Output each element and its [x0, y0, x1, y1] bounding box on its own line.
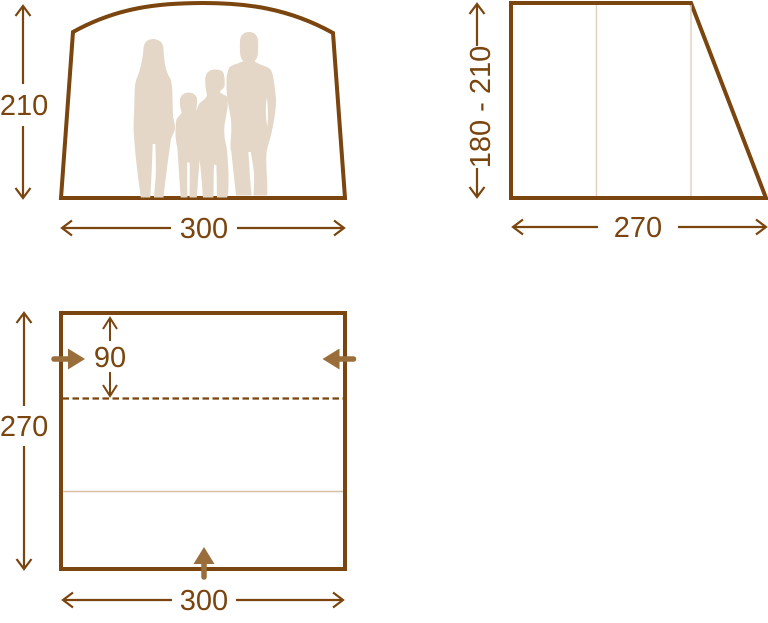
svg-text:300: 300 [180, 585, 228, 617]
svg-text:180 - 210: 180 - 210 [465, 46, 497, 169]
svg-text:210: 210 [0, 90, 48, 122]
svg-text:90: 90 [94, 342, 126, 374]
svg-text:270: 270 [614, 212, 662, 244]
svg-text:270: 270 [0, 411, 48, 443]
svg-text:300: 300 [180, 213, 228, 245]
